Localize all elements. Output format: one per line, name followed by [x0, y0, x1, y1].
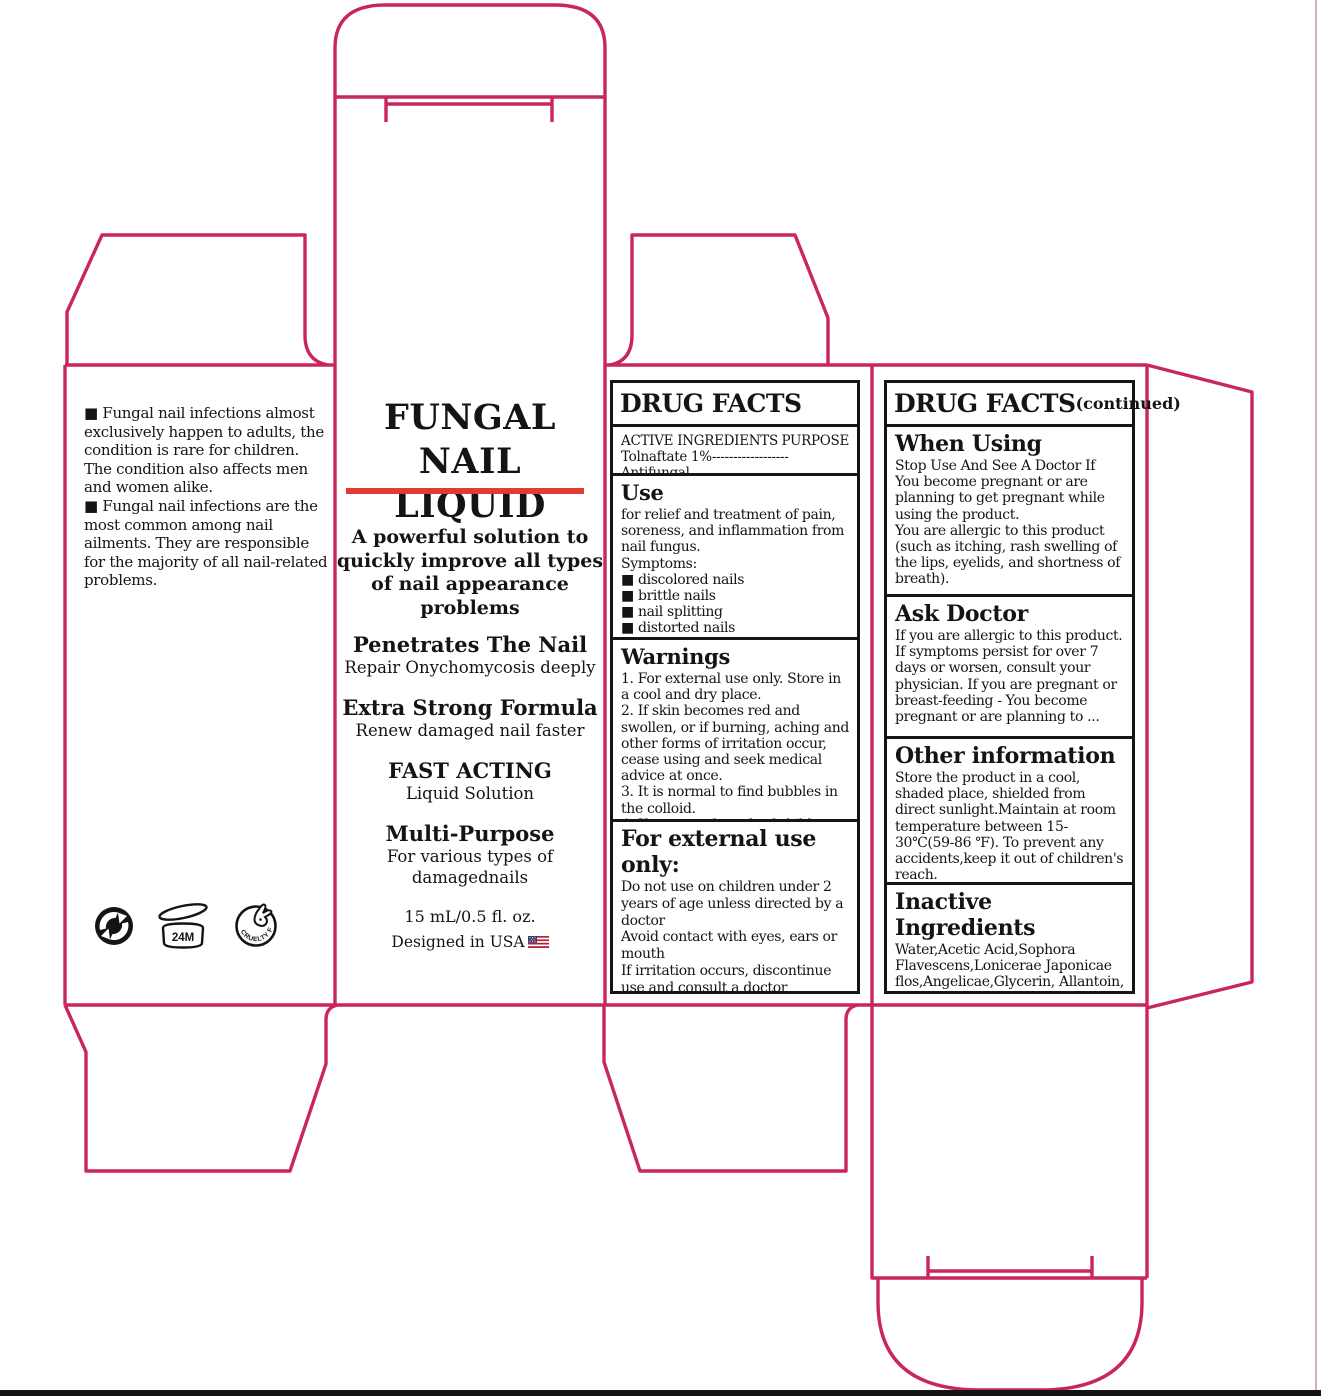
feature-list: Penetrates The Nail Repair Onychomycosis… — [333, 632, 607, 905]
product-tagline: A powerful solution to quickly improve a… — [334, 526, 606, 620]
artboard-right-edge — [1315, 0, 1317, 1396]
purpose-label: PURPOSE — [781, 433, 849, 449]
bottom-flap-left — [65, 1005, 338, 1171]
feature-heading: Extra Strong Formula — [333, 695, 607, 720]
recycle-icon — [94, 906, 134, 946]
bottom-tuck-flap — [878, 1278, 1142, 1390]
drug-facts-continued-title: DRUG FACTS — [894, 389, 1076, 418]
feature-heading: Multi-Purpose — [333, 821, 607, 846]
use-section: Use for relief and treatment of pain, so… — [613, 476, 857, 640]
inactive-ingredients-body: Water,Acetic Acid,Sophora Flavescens,Lon… — [895, 942, 1124, 991]
when-using-heading: When Using — [895, 431, 1124, 457]
feature-item: Extra Strong Formula Renew damaged nail … — [333, 695, 607, 741]
period-after-opening-icon: 24M — [154, 901, 212, 951]
product-title: FUNGAL NAIL LIQUID — [333, 396, 607, 528]
inactive-ingredients-section: Inactive Ingredients Water,Acetic Acid,S… — [887, 885, 1132, 991]
inactive-ingredients-heading: Inactive Ingredients — [895, 889, 1124, 941]
package-dieline-artboard: ■ Fungal nail infections almost exclusiv… — [0, 0, 1321, 1396]
origin-text: Designed in USA — [391, 933, 524, 951]
feature-item: FAST ACTING Liquid Solution — [333, 758, 607, 804]
feature-subtext: Liquid Solution — [333, 783, 607, 804]
active-ingredients-section: ACTIVE INGREDIENTS PURPOSE Tolnaftate 1%… — [613, 427, 857, 476]
us-flag-icon — [528, 934, 549, 952]
bottom-flap-center — [604, 1005, 858, 1171]
warnings-body: 1. For external use only. Store in a coo… — [621, 671, 849, 822]
feature-heading: Penetrates The Nail — [333, 632, 607, 657]
feature-item: Multi-Purpose For various types of damag… — [333, 821, 607, 888]
when-using-section: When Using Stop Use And See A Doctor If … — [887, 427, 1132, 597]
drug-facts-header: DRUG FACTS — [613, 383, 857, 427]
drug-facts-continued-suffix: (continued) — [1076, 394, 1181, 413]
artboard-bottom-bar — [0, 1390, 1321, 1396]
feature-item: Penetrates The Nail Repair Onychomycosis… — [333, 632, 607, 678]
use-symptom-list: ■ discolored nails ■ brittle nails ■ nai… — [621, 572, 849, 637]
svg-text:24M: 24M — [172, 932, 194, 944]
active-ingredients-label: ACTIVE INGREDIENTS — [621, 433, 778, 449]
warnings-section: Warnings 1. For external use only. Store… — [613, 640, 857, 822]
drug-facts-continued-panel: DRUG FACTS (continued) When Using Stop U… — [884, 380, 1135, 994]
drug-facts-panel: DRUG FACTS ACTIVE INGREDIENTS PURPOSE To… — [610, 380, 860, 994]
title-underline — [346, 488, 584, 494]
ask-doctor-heading: Ask Doctor — [895, 601, 1124, 627]
top-tuck-flap — [335, 5, 605, 97]
drug-facts-title: DRUG FACTS — [620, 389, 802, 418]
drug-facts-continued-header: DRUG FACTS (continued) — [887, 383, 1132, 427]
net-volume: 15 mL/0.5 fl. oz. — [333, 907, 607, 926]
cruelty-free-icon: CRUELTY FREE — [232, 902, 280, 950]
external-use-heading: For external use only: — [621, 826, 849, 878]
active-ingredient-line: Tolnaftate 1%------------------Antifunga… — [621, 449, 849, 476]
nail-infection-info-text: ■ Fungal nail infections almost exclusiv… — [84, 404, 328, 590]
ask-doctor-section: Ask Doctor If you are allergic to this p… — [887, 597, 1132, 739]
use-heading: Use — [621, 480, 849, 506]
warnings-heading: Warnings — [621, 644, 849, 670]
certification-icon-row: 24M CRUELTY FREE — [94, 901, 304, 951]
when-using-body: Stop Use And See A Doctor If You become … — [895, 458, 1124, 588]
other-information-body: Store the product in a cool, shaded plac… — [895, 770, 1124, 883]
external-use-body: Do not use on children under 2 years of … — [621, 879, 849, 991]
ask-doctor-body: If you are allergic to this product. If … — [895, 628, 1124, 725]
feature-subtext: For various types of damagednails — [333, 846, 607, 888]
other-information-heading: Other information — [895, 743, 1124, 769]
feature-heading: FAST ACTING — [333, 758, 607, 783]
external-use-section: For external use only: Do not use on chi… — [613, 822, 857, 991]
feature-subtext: Renew damaged nail faster — [333, 720, 607, 741]
other-information-section: Other information Store the product in a… — [887, 739, 1132, 885]
glue-flap — [1147, 365, 1252, 1008]
use-body: for relief and treatment of pain, sorene… — [621, 507, 849, 572]
top-dust-flap-left — [67, 235, 328, 365]
bottom-closure-panel — [872, 1005, 1147, 1278]
top-dust-flap-right — [610, 235, 828, 365]
feature-subtext: Repair Onychomycosis deeply — [333, 657, 607, 678]
origin-line: Designed in USA — [333, 933, 607, 952]
